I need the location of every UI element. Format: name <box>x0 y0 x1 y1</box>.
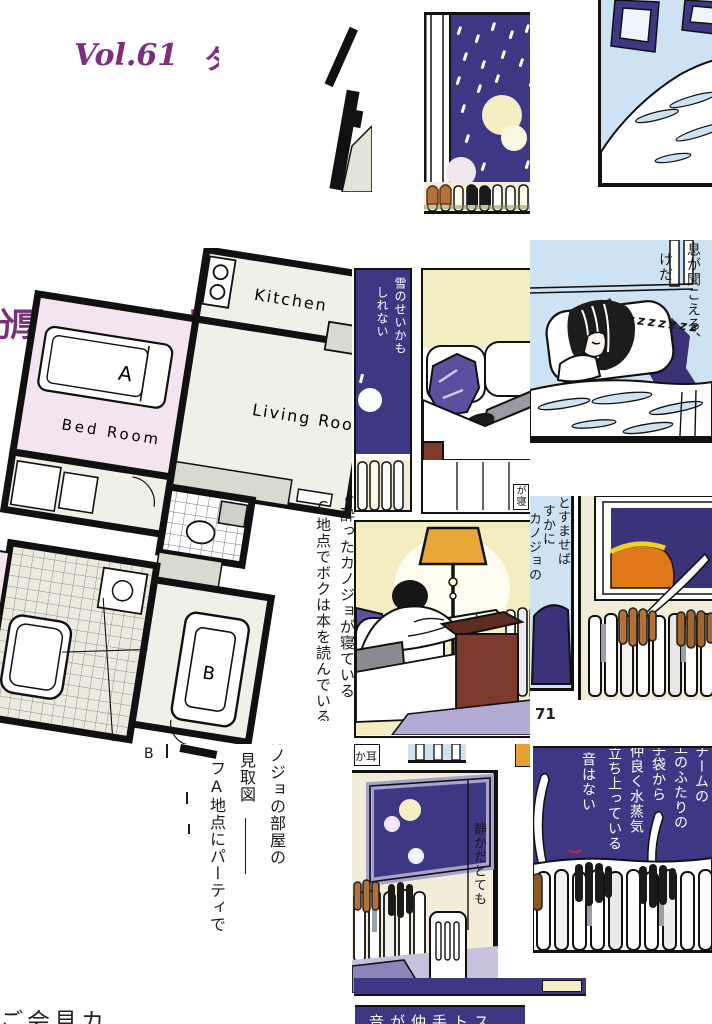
bed-corner-art <box>601 0 712 184</box>
legend-dash <box>245 818 246 874</box>
glove-brown <box>427 186 438 204</box>
window-bottom-fragment <box>408 744 466 763</box>
panel-bed-corner <box>598 0 712 187</box>
panel-snow-window <box>424 12 530 214</box>
moon-yellow <box>399 799 421 821</box>
panel-sliver-fragment <box>515 744 530 767</box>
caption-snow-1: 雪のせいかも <box>394 277 406 355</box>
toilet-tank <box>218 501 247 527</box>
blanket <box>601 60 712 184</box>
bottom-left-fragment: ご会見カ <box>0 1002 130 1024</box>
manga-page: Vol.61タ <box>0 0 712 1024</box>
moon-white <box>408 848 424 864</box>
caption-quiet: 静かだとても <box>472 822 485 906</box>
volume-label: Vol.61 <box>74 38 178 73</box>
caption-fragment-top-box: か耳 <box>354 744 380 766</box>
caption-fragment-box: が寝 <box>513 484 529 510</box>
caption-listen-3: カノジョの <box>530 512 540 582</box>
plan-note-b: で酔ったカノジョが寝ている <box>339 496 354 699</box>
glove-black <box>467 185 478 205</box>
caption-listen-2: すかに <box>541 504 554 546</box>
radiator-frame-art <box>581 496 712 700</box>
caption-listen-1: とすませば <box>556 496 569 566</box>
caption-sleep-right: 息が聞こえる、 <box>686 242 700 347</box>
snow-window-art <box>424 12 530 214</box>
sink <box>98 568 148 614</box>
lamp-shade <box>420 528 486 564</box>
reading-art <box>356 522 530 735</box>
glove-black <box>480 186 491 205</box>
panel-listen: とすませば すかに カノジョの <box>530 496 574 691</box>
steam-gloves-art <box>533 748 712 952</box>
cut-stroke <box>186 792 188 804</box>
couch-legs-art <box>423 270 530 512</box>
legend-col3: フA地点にパーティで <box>208 760 224 933</box>
panel-bottom-strip: 音が仲手トス <box>355 1005 525 1024</box>
volume-title-fragment: タ <box>204 38 219 77</box>
caption-fragment-top: か耳 <box>355 750 377 763</box>
sill-radiator <box>424 185 530 211</box>
caption-sleep-left: けだ <box>658 252 672 282</box>
panel-radiator-window: か耳 <box>352 744 530 993</box>
armchair-art <box>530 596 574 688</box>
armchair <box>532 605 571 684</box>
plan-note-c: C地点でボクは本を読んでいる <box>315 498 330 721</box>
panel-snow-maybe: 雪のせいかも しれない <box>354 268 412 512</box>
caption-fragment-sleep: が寝 <box>514 485 524 507</box>
baseboard-band <box>354 978 586 996</box>
plan-notes: で酔ったカノジョが寝ている C地点でボクは本を読んでいる <box>300 496 356 721</box>
caption-snow-2: しれない <box>376 286 388 338</box>
bottom-left-text: ご会見カ <box>0 1009 108 1024</box>
panel-reading <box>354 520 530 738</box>
caption-bottom-strip: 音が仲手トス <box>369 1011 495 1024</box>
moon-small <box>501 125 527 151</box>
glove-brown-edge <box>533 874 542 910</box>
panel-sleeping: zzzzzzzz 息が聞こえる、 けだ <box>530 240 712 443</box>
couch-back-cushion <box>485 342 530 396</box>
panel-couch-legs: が寝 <box>421 268 530 514</box>
legend-block: カノジョの部屋の 見取図 フA地点にパーティで <box>184 744 288 949</box>
bathtub <box>0 614 73 701</box>
legend-col2: 見取図 <box>238 752 254 803</box>
plan-b-fragment: B <box>144 744 178 759</box>
plan-wall-fragment <box>322 24 372 192</box>
panel-steam-gloves: チームの 上のふたりの 手袋から 仲良く水蒸気 立ち上っている 音はない <box>533 746 712 953</box>
face <box>584 332 606 356</box>
panel-radiator-frame <box>578 496 712 700</box>
glove-brown <box>440 185 451 204</box>
steam-wisp <box>533 774 549 870</box>
painting-shape <box>611 546 674 588</box>
baseboard-block <box>542 980 582 992</box>
volume-heading: Vol.61タ <box>74 38 219 77</box>
moon <box>358 388 382 412</box>
night-sky <box>450 15 530 182</box>
legend-col1: カノジョの部屋の <box>268 744 284 866</box>
cut-stroke <box>188 824 190 834</box>
page-number: 71 <box>535 705 556 723</box>
plan-b-fragment-label: B <box>144 746 154 759</box>
red-scribble <box>569 850 581 852</box>
radiator-top <box>356 454 410 510</box>
moon-pink <box>384 816 400 832</box>
